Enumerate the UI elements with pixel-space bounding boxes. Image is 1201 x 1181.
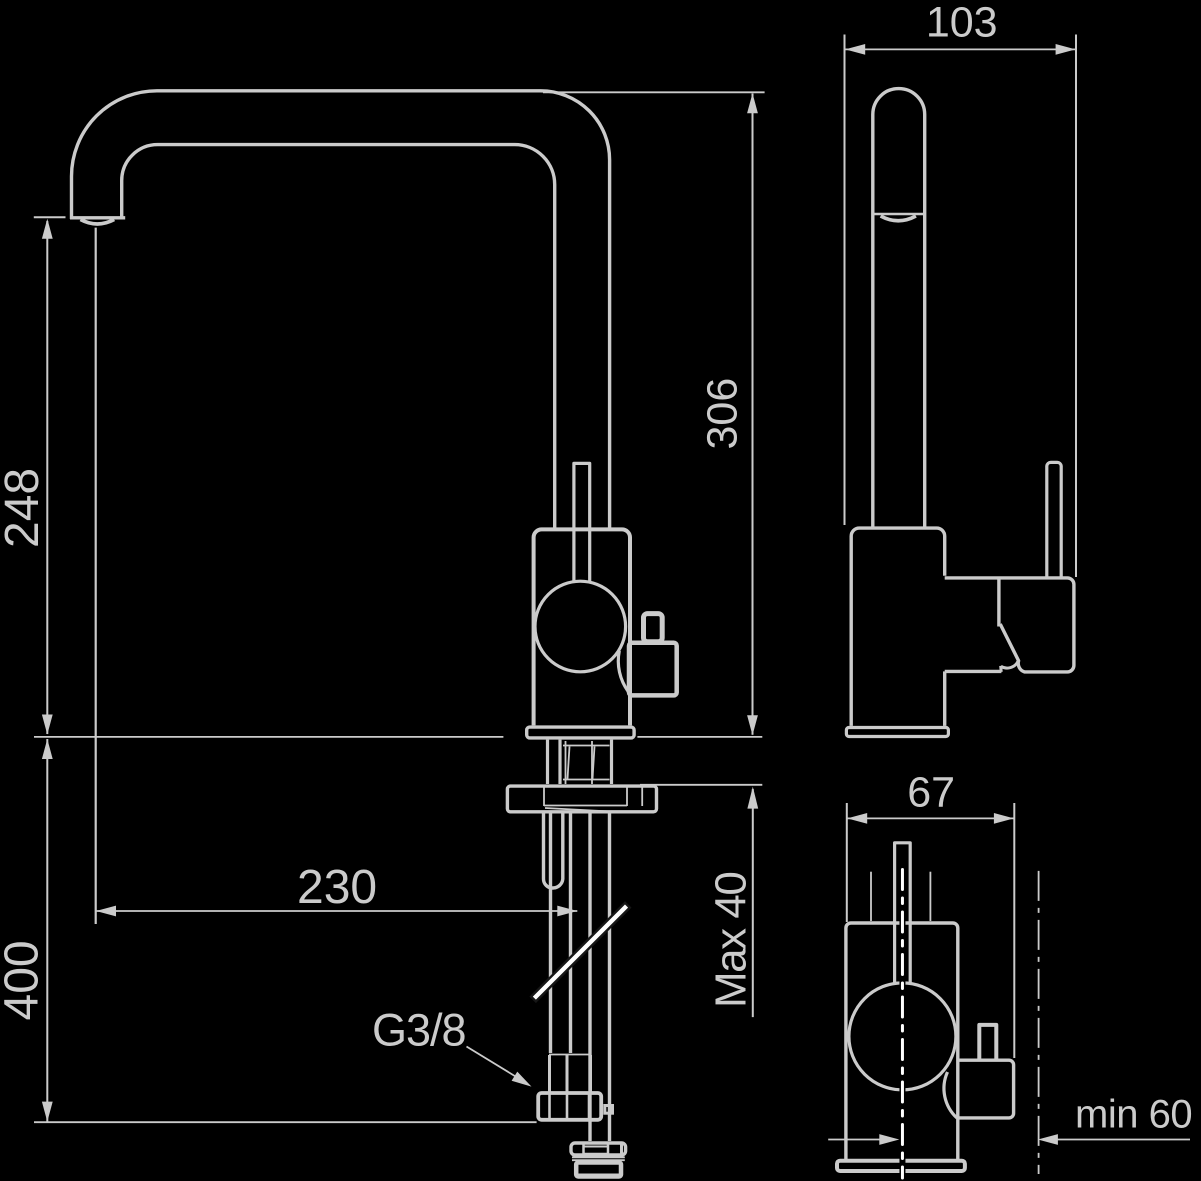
svg-text:400: 400 [0, 940, 49, 1020]
svg-text:G3/8: G3/8 [372, 1005, 466, 1056]
svg-text:67: 67 [907, 769, 955, 817]
svg-text:248: 248 [0, 468, 49, 548]
svg-text:min 60: min 60 [1075, 1093, 1192, 1137]
svg-text:230: 230 [297, 861, 377, 914]
svg-text:Max 40: Max 40 [707, 873, 756, 1008]
svg-text:306: 306 [699, 378, 747, 450]
svg-text:103: 103 [926, 0, 998, 47]
